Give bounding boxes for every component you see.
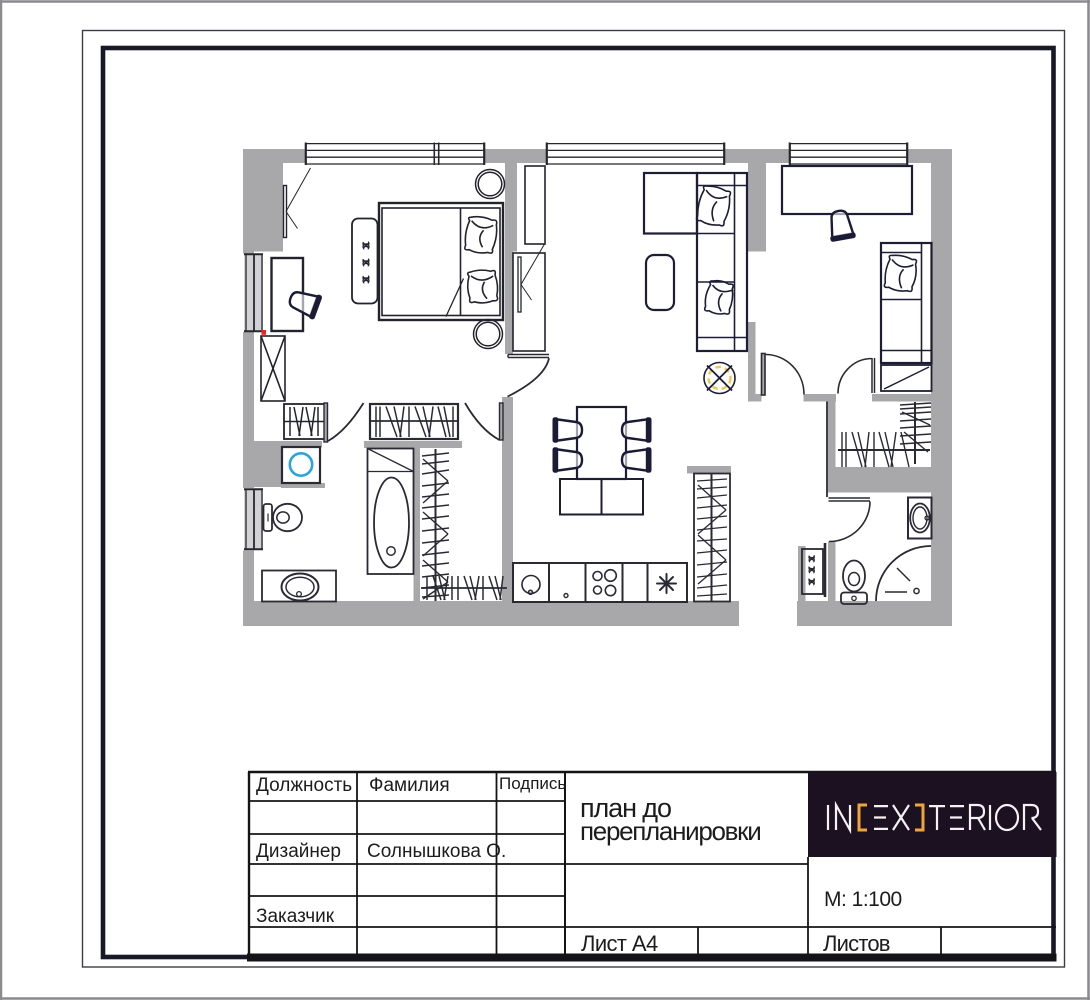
svg-text:Подпись: Подпись bbox=[499, 774, 566, 793]
svg-text:Лист А4: Лист А4 bbox=[581, 931, 658, 956]
svg-text:Должность: Должность bbox=[256, 775, 352, 796]
svg-text:Солнышкова О.: Солнышкова О. bbox=[367, 841, 506, 862]
svg-text:Заказчик: Заказчик bbox=[256, 906, 335, 927]
svg-text:М: 1:100: М: 1:100 bbox=[824, 888, 902, 911]
svg-text:Листов: Листов bbox=[823, 931, 890, 956]
svg-text:перепланировки: перепланировки bbox=[580, 816, 760, 846]
svg-text:Фамилия: Фамилия bbox=[369, 775, 450, 796]
svg-text:Дизайнер: Дизайнер bbox=[256, 841, 341, 862]
